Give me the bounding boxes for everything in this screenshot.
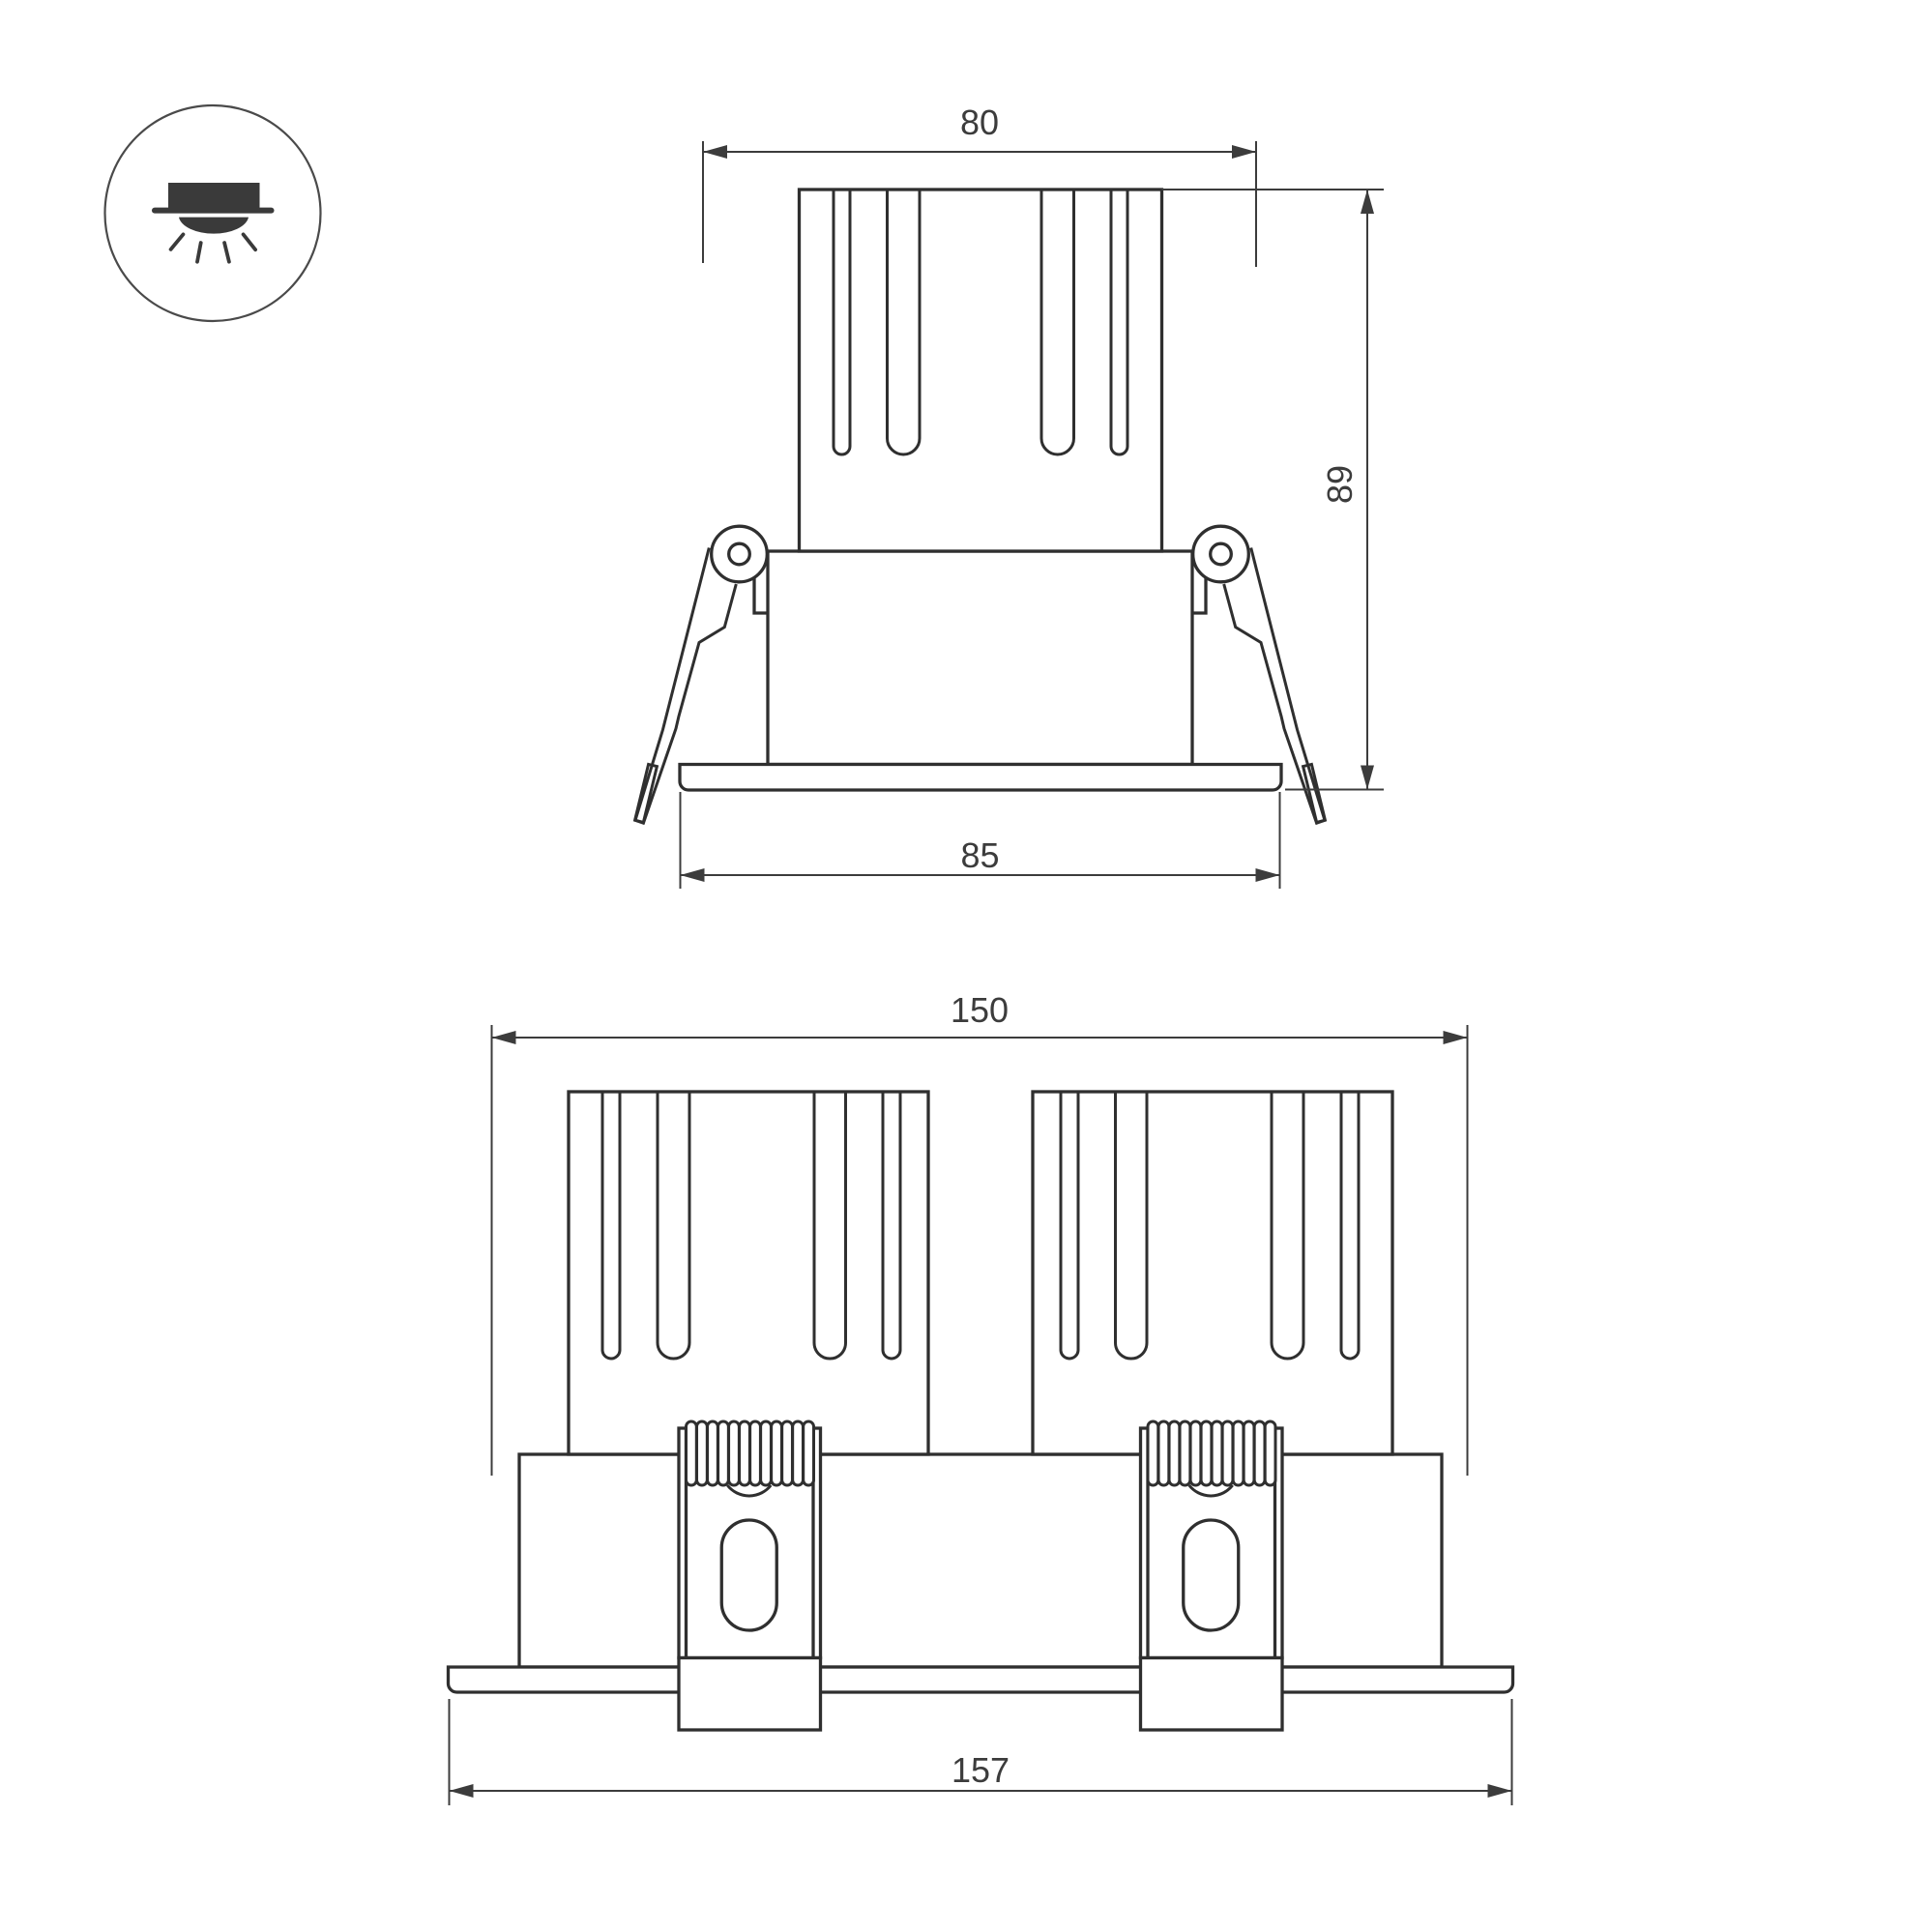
svg-text:80: 80 (960, 102, 999, 142)
svg-text:157: 157 (951, 1750, 1010, 1790)
svg-text:89: 89 (1320, 465, 1360, 504)
svg-text:150: 150 (951, 990, 1009, 1030)
svg-text:85: 85 (960, 835, 999, 875)
